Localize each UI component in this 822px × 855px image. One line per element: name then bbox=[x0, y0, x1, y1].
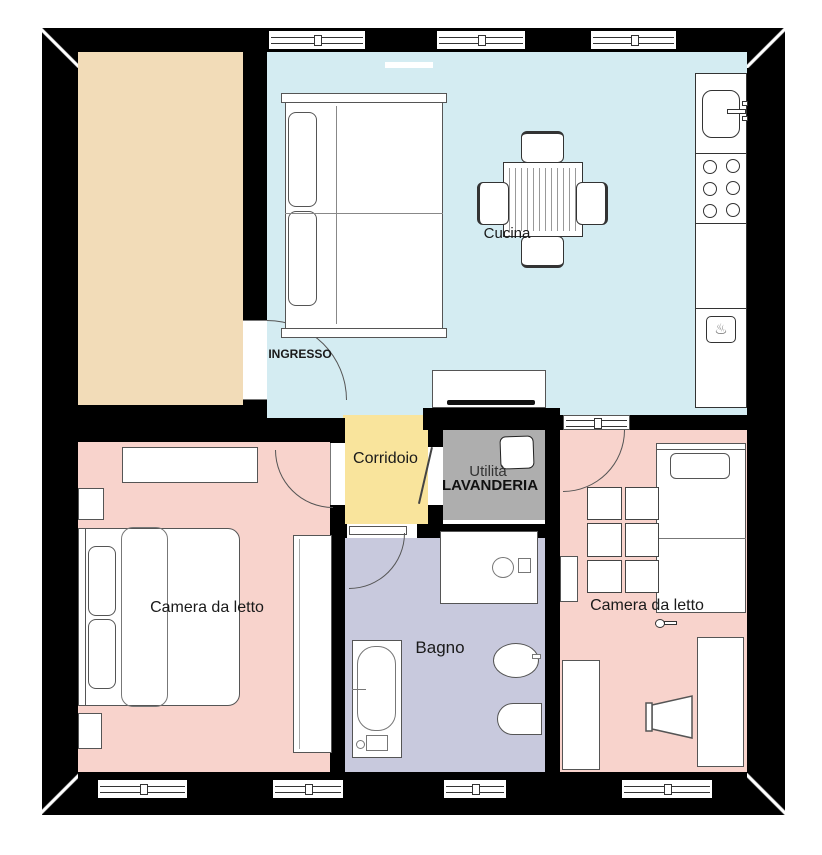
wall-right bbox=[747, 28, 785, 815]
label-bagno: Bagno bbox=[408, 639, 472, 658]
wardrobe-cell bbox=[587, 523, 622, 556]
window-top-2 bbox=[436, 30, 526, 50]
window-bottom-2 bbox=[272, 779, 344, 799]
dining-table-slats bbox=[509, 168, 577, 231]
wardrobe-cell bbox=[587, 560, 622, 593]
corner-mitre-top-right bbox=[747, 28, 785, 68]
wardrobe-cell bbox=[625, 560, 660, 593]
chair-east bbox=[576, 182, 608, 225]
label-cucina: Cucina bbox=[452, 226, 562, 243]
single-bed-pillow bbox=[670, 453, 730, 479]
sofa-bed-cap-bottom bbox=[281, 328, 447, 338]
corner-mitre-top-left bbox=[42, 28, 78, 68]
floor-plan: ♨ Cucina INGRESSO C bbox=[0, 0, 822, 855]
wall-laundry-top bbox=[423, 408, 560, 430]
counter-divider-2 bbox=[695, 223, 747, 224]
label-lavanderia: LAVANDERIA bbox=[432, 478, 548, 495]
bathtub-drain-circle bbox=[356, 740, 365, 749]
wardrobe-cell bbox=[625, 487, 660, 520]
hob-burner-1 bbox=[703, 160, 717, 174]
key-icon-bar bbox=[664, 621, 677, 625]
hob-burner-4 bbox=[726, 181, 740, 195]
wall-bedroom-left-top bbox=[42, 418, 345, 442]
hob-burner-3 bbox=[703, 182, 717, 196]
nightstand-right-bedroom bbox=[560, 556, 578, 602]
single-bed-headboard bbox=[656, 443, 746, 450]
chair-north bbox=[521, 131, 564, 163]
kitchen-sink bbox=[702, 90, 740, 138]
double-bed-fold bbox=[121, 527, 168, 707]
desk-right-bedroom bbox=[697, 637, 744, 767]
radiator-mark bbox=[385, 62, 433, 68]
wardrobe-cell bbox=[587, 487, 622, 520]
hob-burner-2 bbox=[726, 159, 740, 173]
double-bed-pillow-2 bbox=[88, 619, 116, 689]
hob-burner-6 bbox=[726, 203, 740, 217]
label-ingresso: INGRESSO bbox=[240, 348, 360, 361]
toilet-flush bbox=[532, 654, 541, 659]
corner-mitre-bottom-right bbox=[747, 773, 785, 815]
door-opening-bedroom-right bbox=[563, 415, 630, 430]
counter-divider-1 bbox=[695, 153, 747, 154]
bathtub-drain-box bbox=[366, 735, 388, 751]
oven-icon: ♨ bbox=[706, 316, 736, 343]
label-corridoio: Corridoio bbox=[343, 450, 428, 468]
window-bottom-1 bbox=[97, 779, 188, 799]
desk-chair bbox=[644, 694, 696, 740]
wall-bathroom-bedroom-right bbox=[545, 408, 560, 775]
nightstand-left-1 bbox=[78, 488, 104, 520]
window-top-3 bbox=[590, 30, 677, 50]
single-bed-blanket-line bbox=[656, 538, 746, 539]
wardrobe-cell bbox=[625, 523, 660, 556]
corner-mitre-bottom-left bbox=[42, 773, 78, 815]
label-camera-da-letto-left: Camera da letto bbox=[137, 599, 277, 617]
bathtub-faucet-line bbox=[352, 689, 366, 690]
hob-burner-5 bbox=[703, 204, 717, 218]
window-bottom-4 bbox=[621, 779, 713, 799]
sofa-bed-pillow-2 bbox=[288, 211, 317, 306]
sofa-bed-pillow-1 bbox=[288, 112, 317, 207]
wardrobe-right-bedroom bbox=[587, 487, 659, 593]
window-bottom-3 bbox=[443, 779, 507, 799]
cabinet-right-bedroom bbox=[562, 660, 600, 770]
bidet bbox=[497, 703, 542, 735]
sofa-bed-middle-line bbox=[285, 213, 443, 214]
counter-divider-3 bbox=[695, 308, 747, 309]
double-bed-headboard bbox=[78, 528, 86, 706]
toilet bbox=[493, 643, 539, 678]
sink-tap-1 bbox=[742, 101, 748, 106]
vanity-accessory bbox=[518, 558, 531, 573]
dresser-left-bedroom bbox=[122, 447, 258, 483]
sink-tap-2 bbox=[742, 116, 748, 121]
window-top-1 bbox=[268, 30, 366, 50]
sink-faucet bbox=[727, 109, 746, 114]
wardrobe-left-inner-line bbox=[299, 539, 300, 749]
room-corridor-floor bbox=[343, 415, 428, 527]
chair-west bbox=[477, 182, 509, 225]
label-camera-da-letto-right: Camera da letto bbox=[577, 597, 717, 615]
nightstand-left-2 bbox=[78, 713, 102, 749]
wall-entry-upper bbox=[243, 52, 267, 320]
sofa-bed-fold-line bbox=[336, 106, 337, 324]
vanity-sink bbox=[492, 557, 514, 578]
room-unlabeled-floor bbox=[78, 52, 243, 405]
tv-bar bbox=[447, 400, 535, 405]
double-bed-pillow-1 bbox=[88, 546, 116, 616]
